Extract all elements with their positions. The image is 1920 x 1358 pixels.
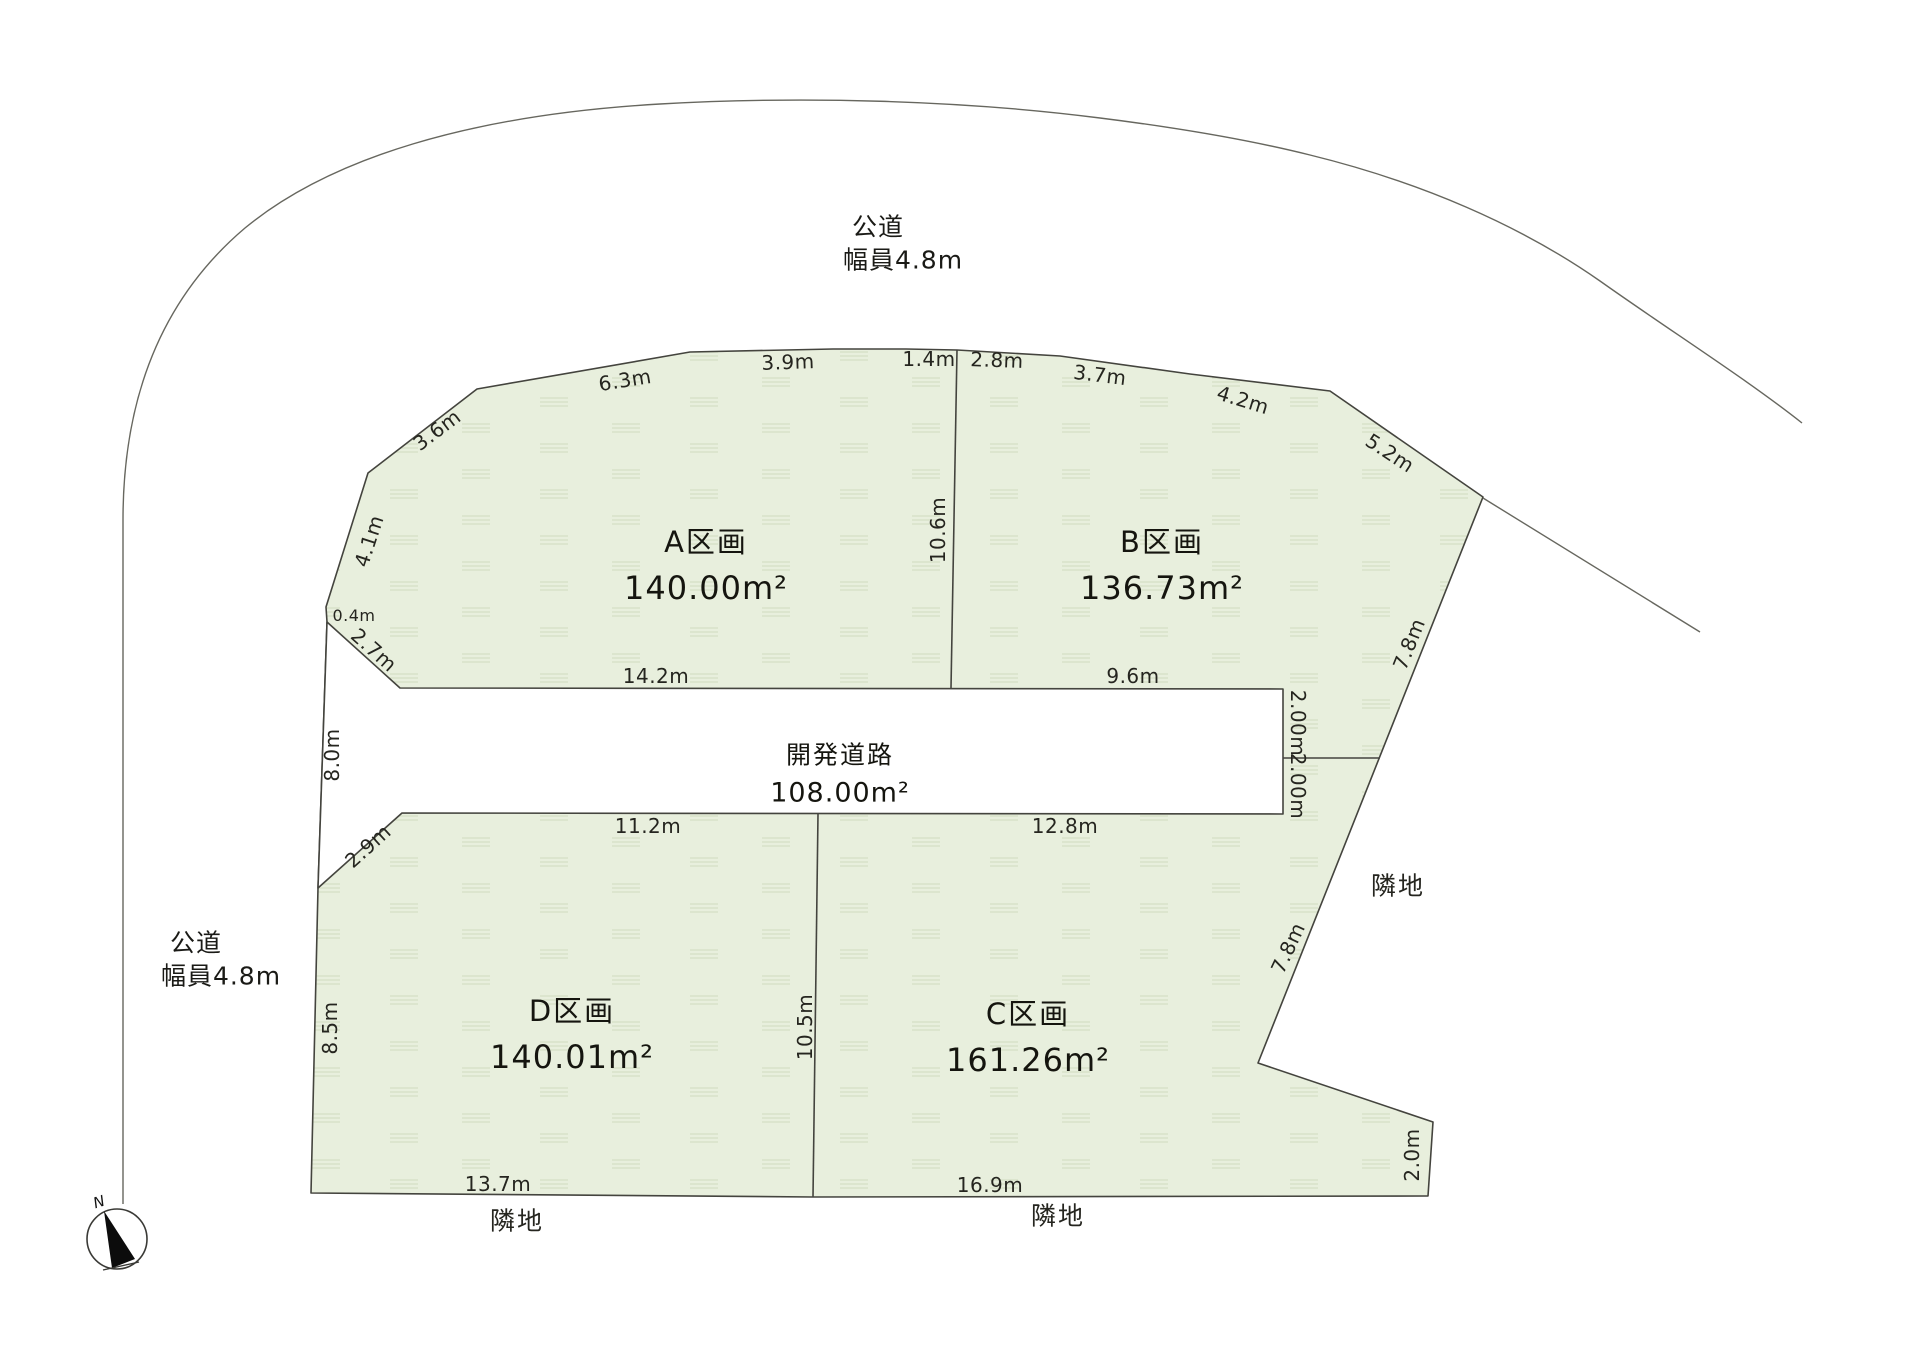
public-road-top-width: 幅員4.8m [843, 248, 963, 273]
plot-b-area: 136.73m² [1080, 569, 1244, 607]
dim-c-bottom-16-9m: 16.9m [957, 1175, 1024, 1195]
plot-c-area: 161.26m² [946, 1041, 1110, 1079]
dim-d-bottom-13-7m: 13.7m [465, 1174, 532, 1194]
dim-divider-dc-10-5m: 10.5m [795, 994, 815, 1061]
dim-top-1-4m: 1.4m [902, 349, 955, 369]
neighbor-label-right: 隣地 [1371, 874, 1425, 899]
dim-c-top-12-8m: 12.8m [1032, 816, 1099, 836]
development-road-name: 開発道路 [770, 736, 910, 772]
development-road-area: 108.00m² [770, 778, 910, 809]
plot-b-name: B区画 [1080, 519, 1244, 561]
plot-b-label: B区画 136.73m² [1080, 519, 1244, 607]
dim-c-right-2-0m: 2.0m [1402, 1128, 1422, 1181]
neighbor-label-bottom-right: 隣地 [1031, 1204, 1085, 1229]
plot-a-label: A区画 140.00m² [624, 519, 788, 607]
dim-top-3-9m: 3.9m [761, 351, 815, 373]
dim-b-bottom-9-6m: 9.6m [1106, 666, 1159, 686]
dim-a-bottom-14-2m: 14.2m [623, 666, 690, 686]
development-road-label: 開発道路 108.00m² [770, 736, 910, 809]
dim-road-left-8-0m: 8.0m [322, 728, 342, 781]
neighbor-boundary-line [1483, 498, 1700, 632]
public-road-left-name: 公道 [170, 931, 222, 956]
plot-c-name: C区画 [946, 991, 1110, 1033]
plot-a-name: A区画 [624, 519, 788, 561]
neighbor-label-bottom-left: 隣地 [490, 1209, 544, 1234]
plot-a-area: 140.00m² [624, 569, 788, 607]
plan-drawing [0, 0, 1920, 1358]
dim-top-3-7m: 3.7m [1072, 362, 1127, 388]
dim-left-0-4m: 0.4m [332, 608, 375, 624]
plot-d-label: D区画 140.01m² [490, 988, 654, 1076]
dim-divider-ab-10-6m: 10.6m [928, 497, 948, 564]
site-plan: 公道 幅員4.8m 公道 幅員4.8m 開発道路 108.00m² A区画 14… [0, 0, 1920, 1358]
plot-d-name: D区画 [490, 988, 654, 1030]
dim-top-2-8m: 2.8m [970, 349, 1024, 371]
dim-right-2-00m-lower: 2.00m [1288, 753, 1308, 820]
dim-d-top-11-2m: 11.2m [615, 816, 682, 836]
public-road-left-width: 幅員4.8m [161, 964, 281, 989]
dim-d-left-8-5m: 8.5m [320, 1001, 340, 1054]
compass [87, 1209, 147, 1270]
plot-d-area: 140.01m² [490, 1038, 654, 1076]
plot-c-label: C区画 161.26m² [946, 991, 1110, 1079]
dim-right-2-00m-upper: 2.00m [1288, 690, 1308, 757]
public-road-top-name: 公道 [852, 215, 904, 240]
